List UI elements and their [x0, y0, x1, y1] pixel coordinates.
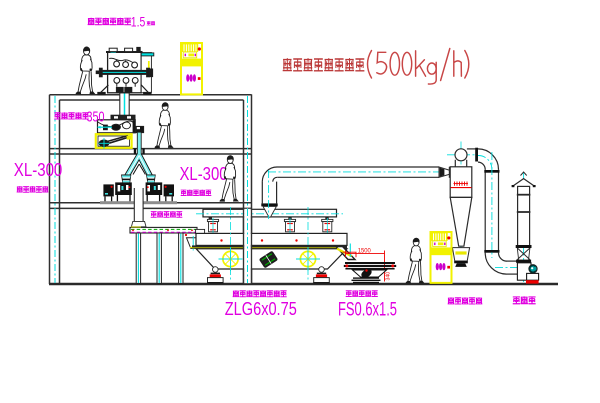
svg-text:1500: 1500: [358, 249, 372, 255]
svg-text:350: 350: [87, 108, 105, 125]
svg-text:1.5: 1.5: [131, 13, 146, 29]
svg-text:340: 340: [386, 272, 392, 281]
svg-text:ZLG6x0.75: ZLG6x0.75: [225, 298, 297, 319]
svg-text:XL-300: XL-300: [14, 159, 63, 180]
svg-text:XL-300: XL-300: [180, 163, 228, 184]
svg-text:FS0.6x1.5: FS0.6x1.5: [338, 300, 397, 321]
